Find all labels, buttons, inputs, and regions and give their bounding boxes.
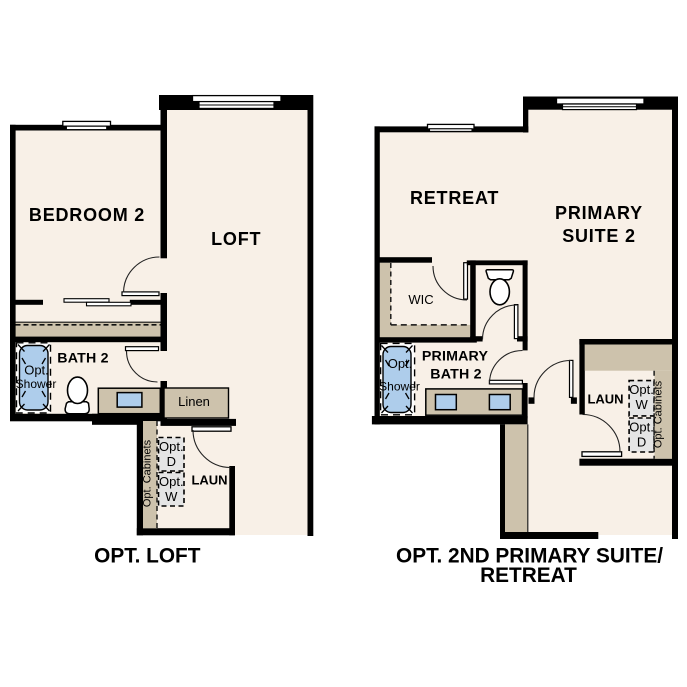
svg-text:Opt.: Opt. — [388, 356, 413, 371]
svg-text:LAUN: LAUN — [587, 392, 623, 407]
svg-text:BATH 2: BATH 2 — [430, 366, 481, 382]
svg-text:OPT. LOFT: OPT. LOFT — [94, 545, 201, 568]
svg-text:PRIMARY: PRIMARY — [422, 348, 489, 364]
svg-text:Linen: Linen — [178, 394, 210, 409]
svg-text:W: W — [635, 397, 648, 412]
svg-text:Opt.: Opt. — [159, 474, 184, 489]
svg-text:SUITE 2: SUITE 2 — [562, 226, 636, 246]
svg-text:Shower: Shower — [16, 377, 57, 391]
svg-text:BATH 2: BATH 2 — [57, 351, 108, 367]
svg-text:PRIMARY: PRIMARY — [555, 203, 643, 223]
svg-text:LAUN: LAUN — [191, 473, 227, 488]
svg-text:Opt. Cabinets: Opt. Cabinets — [653, 380, 665, 448]
svg-text:Opt.: Opt. — [159, 439, 184, 454]
svg-text:Opt.: Opt. — [24, 363, 49, 378]
svg-text:Opt. Cabinets: Opt. Cabinets — [142, 439, 154, 507]
svg-text:W: W — [165, 489, 178, 504]
svg-text:WIC: WIC — [408, 292, 433, 307]
svg-text:RETREAT: RETREAT — [480, 564, 577, 587]
svg-text:Opt.: Opt. — [629, 420, 654, 435]
svg-text:D: D — [637, 435, 646, 450]
svg-text:Shower: Shower — [379, 380, 420, 394]
svg-text:RETREAT: RETREAT — [410, 188, 499, 208]
svg-text:Opt.: Opt. — [629, 382, 654, 397]
svg-text:D: D — [167, 454, 176, 469]
svg-text:BEDROOM 2: BEDROOM 2 — [29, 205, 145, 225]
svg-text:LOFT: LOFT — [211, 229, 261, 249]
